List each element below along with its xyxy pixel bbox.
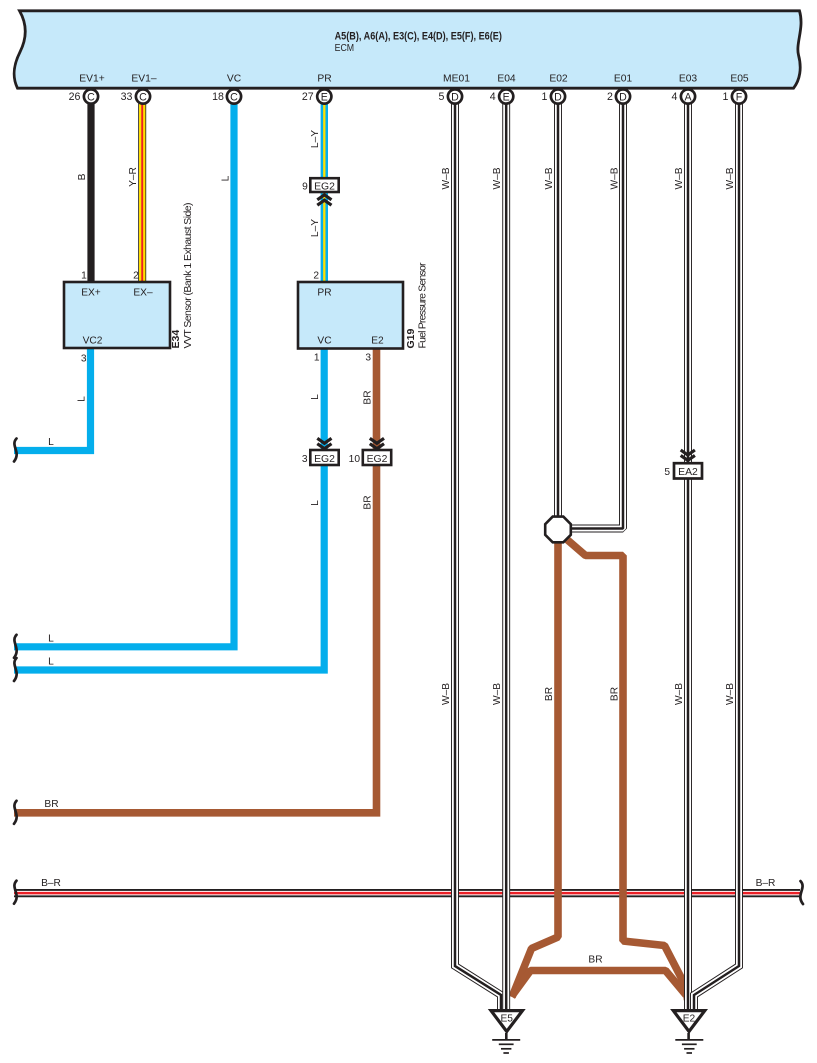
svg-text:EA2: EA2 [678, 467, 698, 478]
svg-text:D: D [619, 91, 627, 103]
svg-text:A5(B), A6(A), E3(C), E4(D), E5: A5(B), A6(A), E3(C), E4(D), E5(F), E6(E) [335, 30, 503, 42]
svg-text:B: B [77, 173, 88, 180]
svg-text:4: 4 [671, 91, 677, 103]
svg-text:VC: VC [227, 73, 242, 84]
svg-text:A: A [684, 91, 692, 103]
svg-text:E04: E04 [497, 73, 516, 84]
svg-text:EG2: EG2 [367, 454, 388, 465]
svg-text:L: L [310, 394, 321, 400]
svg-text:G19: G19 [405, 328, 417, 348]
svg-text:26: 26 [69, 91, 81, 103]
svg-text:W–B: W–B [725, 167, 736, 189]
svg-text:9: 9 [302, 182, 308, 193]
svg-text:2: 2 [133, 271, 139, 282]
svg-text:BR: BR [544, 687, 555, 701]
svg-text:EX+: EX+ [81, 288, 101, 299]
svg-text:2: 2 [313, 271, 319, 282]
svg-text:L: L [76, 396, 87, 402]
svg-text:W–B: W–B [674, 167, 685, 189]
svg-text:W–B: W–B [674, 683, 685, 705]
svg-text:1: 1 [81, 271, 87, 282]
svg-text:L: L [310, 500, 321, 506]
svg-text:L: L [48, 437, 54, 448]
svg-text:E5: E5 [500, 1013, 513, 1024]
svg-text:L–Y: L–Y [310, 130, 321, 148]
svg-text:E03: E03 [679, 73, 698, 84]
svg-text:3: 3 [365, 353, 371, 364]
svg-text:1: 1 [314, 353, 320, 364]
svg-text:E02: E02 [549, 73, 568, 84]
svg-text:L: L [48, 633, 54, 644]
svg-text:W–B: W–B [492, 167, 503, 189]
svg-text:BR: BR [362, 390, 373, 404]
svg-text:W–B: W–B [609, 167, 620, 189]
svg-text:VVT Sensor (Bank 1 Exhaust Sid: VVT Sensor (Bank 1 Exhaust Side) [182, 203, 194, 349]
svg-text:L–Y: L–Y [310, 219, 321, 237]
svg-text:27: 27 [302, 91, 314, 103]
svg-text:W–B: W–B [441, 167, 452, 189]
svg-text:4: 4 [490, 91, 496, 103]
svg-text:E05: E05 [730, 73, 749, 84]
svg-text:VC2: VC2 [83, 336, 103, 347]
svg-text:L: L [48, 657, 54, 668]
svg-text:Fuel Pressure Sensor: Fuel Pressure Sensor [417, 262, 429, 349]
svg-text:5: 5 [438, 91, 444, 103]
svg-text:C: C [139, 91, 147, 103]
svg-text:33: 33 [121, 91, 133, 103]
svg-text:D: D [451, 91, 459, 103]
svg-text:3: 3 [302, 454, 308, 465]
svg-text:EG2: EG2 [314, 454, 335, 465]
svg-text:EV1+: EV1+ [79, 73, 104, 84]
svg-text:5: 5 [664, 467, 670, 478]
svg-text:E: E [503, 91, 510, 103]
svg-text:1: 1 [722, 91, 728, 103]
svg-text:W–B: W–B [544, 167, 555, 189]
svg-text:Y–R: Y–R [128, 167, 139, 187]
svg-text:2: 2 [607, 91, 613, 103]
svg-text:E: E [321, 91, 328, 103]
svg-text:PR: PR [317, 73, 331, 84]
svg-text:18: 18 [212, 91, 224, 103]
svg-text:ME01: ME01 [443, 73, 470, 84]
svg-text:PR: PR [317, 288, 331, 299]
svg-text:E2: E2 [683, 1013, 696, 1024]
svg-text:VC: VC [317, 336, 331, 347]
svg-text:BR: BR [588, 955, 602, 966]
svg-text:10: 10 [349, 454, 361, 465]
svg-text:C: C [230, 91, 238, 103]
svg-text:L: L [220, 175, 231, 181]
svg-text:BR: BR [44, 799, 58, 810]
svg-text:F: F [736, 91, 743, 103]
svg-text:D: D [554, 91, 562, 103]
svg-text:B–R: B–R [756, 878, 776, 889]
svg-text:W–B: W–B [492, 683, 503, 705]
svg-text:BR: BR [362, 495, 373, 509]
svg-text:EV1–: EV1– [131, 73, 156, 84]
svg-text:B–R: B–R [41, 878, 61, 889]
svg-text:BR: BR [609, 687, 620, 701]
svg-text:E2: E2 [371, 336, 384, 347]
svg-text:ECM: ECM [335, 43, 355, 54]
svg-text:W–B: W–B [441, 683, 452, 705]
svg-text:W–B: W–B [725, 683, 736, 705]
svg-text:EG2: EG2 [314, 181, 335, 192]
svg-text:1: 1 [541, 91, 547, 103]
svg-text:EX–: EX– [133, 288, 153, 299]
svg-text:C: C [87, 91, 95, 103]
svg-text:E34: E34 [170, 330, 182, 349]
svg-text:E01: E01 [614, 73, 633, 84]
svg-text:3: 3 [81, 354, 87, 365]
